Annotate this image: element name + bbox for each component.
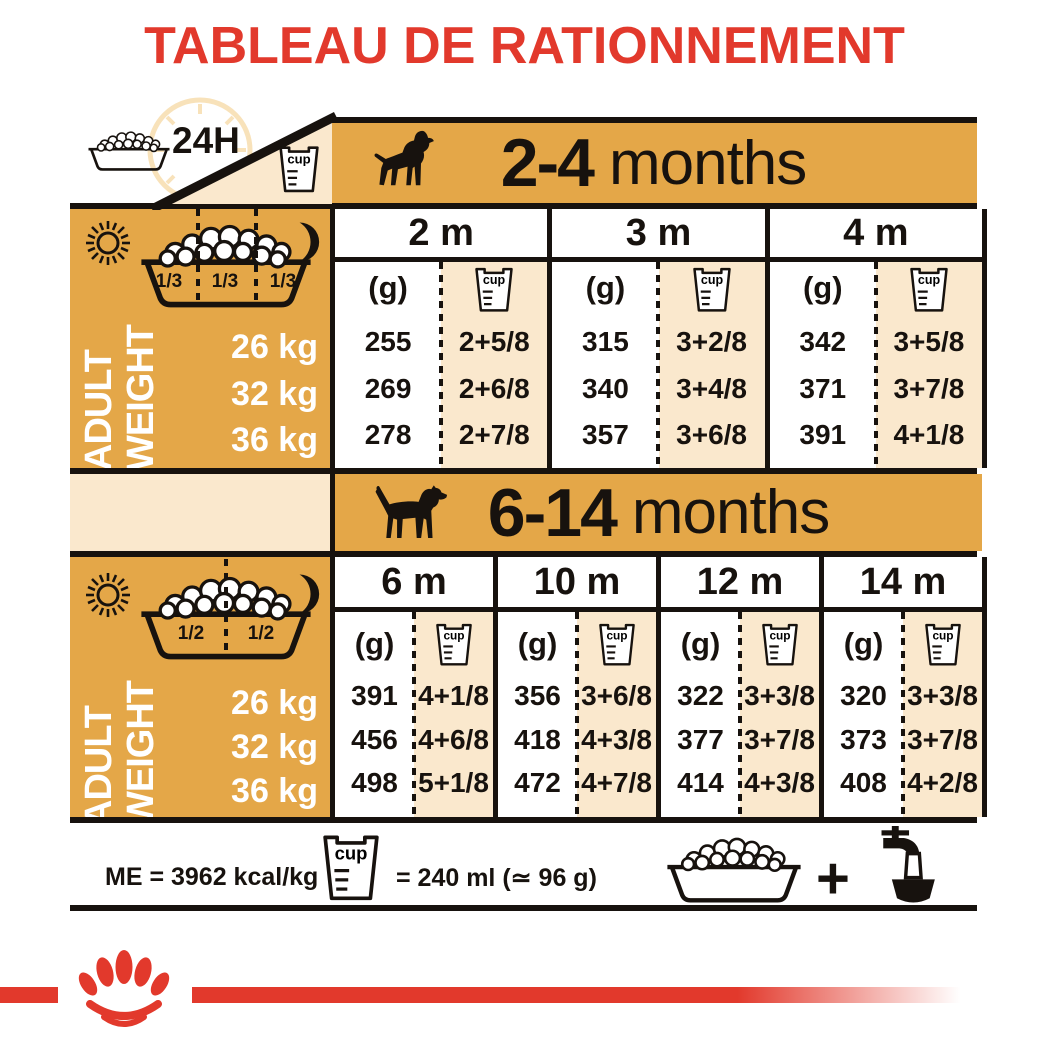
svg-text:cup: cup [918, 273, 941, 287]
svg-text:cup: cup [335, 843, 368, 864]
water-tap-icon [854, 826, 940, 912]
month-body: (g) cup 391 4+1/8 456 4+6/8 498 5+1/8 [335, 612, 493, 817]
24h-label: 24H [172, 120, 240, 162]
moon-icon [286, 573, 320, 615]
month-body: (g) cup 322 3+3/8 377 3+7/8 414 4+3/8 [661, 612, 819, 817]
cup-unit-icon: cup [903, 620, 982, 667]
adult-dog-silhouette-icon [373, 480, 449, 544]
meal-fraction: 1/2 [174, 623, 208, 645]
month-header: 4 m [770, 209, 982, 262]
grams-value: 315 [552, 324, 658, 360]
cups-value: 3+5/8 [876, 324, 982, 360]
grams-value: 357 [552, 417, 658, 453]
month-column-12m: 12 m (g) cup 322 3+3/8 377 3+7/8 414 4+3… [656, 557, 819, 817]
svg-text:cup: cup [606, 628, 627, 642]
meal-fraction: 1/3 [266, 271, 300, 293]
grams-value: 408 [824, 765, 903, 801]
month-body: (g) cup 315 3+2/8 340 3+4/8 357 3+6/8 [552, 262, 764, 468]
grams-value: 340 [552, 371, 658, 407]
cups-value: 3+6/8 [659, 417, 765, 453]
grams-value: 255 [335, 324, 441, 360]
royal-canin-paw-logo [74, 948, 174, 1030]
month-column-14m: 14 m (g) cup 320 3+3/8 373 3+7/8 408 4+2… [819, 557, 982, 817]
month-header: 14 m [824, 557, 982, 612]
plus-icon: + [816, 850, 850, 908]
grams-value: 322 [661, 678, 740, 714]
month-body: (g) cup 320 3+3/8 373 3+7/8 408 4+2/8 [824, 612, 982, 817]
month-column-3m: 3 m (g) cup 315 3+2/8 340 3+4/8 357 3+6/… [547, 209, 764, 468]
cups-value: 4+7/8 [577, 765, 656, 801]
cup-unit-icon: cup [876, 264, 982, 313]
cups-value: 5+1/8 [414, 765, 493, 801]
cups-value: 2+5/8 [441, 324, 547, 360]
svg-text:cup: cup [443, 628, 464, 642]
weight-row-label: 26 kg [188, 329, 318, 365]
month-header: 3 m [552, 209, 764, 262]
month-header: 6 m [335, 557, 493, 612]
weight-row-label: 32 kg [188, 376, 318, 412]
month-column-6m: 6 m (g) cup 391 4+1/8 456 4+6/8 498 5+1/… [335, 557, 493, 817]
section-a-age-range: 2-4 [501, 124, 593, 202]
cup-unit-icon: cup [577, 620, 656, 667]
month-header: 10 m [498, 557, 656, 612]
cups-value: 4+3/8 [577, 722, 656, 758]
meal-fraction: 1/3 [208, 271, 242, 293]
feeding-guide-page: TABLEAU DE RATIONNEMENT 24H cup 2-4 mont… [0, 0, 1049, 1049]
grams-value: 269 [335, 371, 441, 407]
month-column-2m: 2 m (g) cup 255 2+5/8 269 2+6/8 278 2+7/… [335, 209, 547, 468]
footer-rule [70, 905, 977, 911]
cups-value: 3+7/8 [740, 722, 819, 758]
svg-text:cup: cup [483, 273, 506, 287]
cups-value: 3+3/8 [740, 678, 819, 714]
grams-unit-label: (g) [824, 626, 903, 662]
grams-value: 371 [770, 371, 876, 407]
section-a-table: 2 m (g) cup 255 2+5/8 269 2+6/8 278 2+7/… [330, 209, 987, 468]
weight-row-label: 32 kg [188, 729, 318, 765]
cups-value: 3+7/8 [903, 722, 982, 758]
section-b-age-unit: months [632, 477, 829, 548]
cups-value: 4+1/8 [414, 678, 493, 714]
grams-value: 414 [661, 765, 740, 801]
bowl-divider-dotted [196, 209, 200, 301]
metabolizable-energy-label: ME = 3962 kcal/kg [105, 863, 318, 892]
measuring-cup-icon: cup [278, 142, 320, 194]
cups-value: 3+3/8 [903, 678, 982, 714]
section-a-left-panel: 1/3 1/3 1/3 ADULT WEIGHT 26 kg 32 kg 36 … [70, 209, 330, 468]
page-title: TABLEAU DE RATIONNEMENT [0, 16, 1049, 76]
section-b-header: 6-14 months [330, 474, 982, 551]
month-header: 12 m [661, 557, 819, 612]
cup-unit-icon: cup [659, 264, 765, 313]
cups-value: 4+1/8 [876, 417, 982, 453]
month-body: (g) cup 356 3+6/8 418 4+3/8 472 4+7/8 [498, 612, 656, 817]
svg-text:cup: cup [932, 628, 953, 642]
weight-row-label: 36 kg [188, 422, 318, 458]
section-b-table: 6 m (g) cup 391 4+1/8 456 4+6/8 498 5+1/… [330, 557, 987, 817]
section-b-age-range: 6-14 [488, 474, 616, 552]
puppy-silhouette-icon [373, 129, 437, 189]
cup-unit-icon: cup [441, 264, 547, 313]
bowl-divider-dotted [224, 559, 228, 653]
grams-value: 391 [770, 417, 876, 453]
svg-text:cup: cup [769, 628, 790, 642]
cup-equivalence-label: = 240 ml (≃ 96 g) [396, 863, 597, 893]
sun-icon [84, 571, 132, 619]
moon-icon [286, 221, 320, 263]
cup-unit-icon: cup [740, 620, 819, 667]
section-a-header: 2-4 months [330, 123, 977, 203]
food-bowl-icon [655, 833, 813, 907]
cups-value: 2+6/8 [441, 371, 547, 407]
grams-unit-label: (g) [335, 626, 414, 662]
svg-text:cup: cup [287, 151, 310, 166]
adult-weight-axis-label: ADULT WEIGHT [78, 667, 162, 827]
grams-value: 391 [335, 678, 414, 714]
sun-icon [84, 219, 132, 267]
cups-value: 3+2/8 [659, 324, 765, 360]
cups-value: 4+3/8 [740, 765, 819, 801]
measuring-cup-icon: cup [318, 830, 384, 902]
grams-unit-label: (g) [770, 270, 876, 306]
section-b-left-spacer [70, 474, 330, 551]
grams-value: 472 [498, 765, 577, 801]
bowl-divider-dotted [254, 209, 258, 301]
grams-value: 356 [498, 678, 577, 714]
month-column-10m: 10 m (g) cup 356 3+6/8 418 4+3/8 472 4+7… [493, 557, 656, 817]
grams-unit-label: (g) [335, 270, 441, 306]
cups-value: 4+6/8 [414, 722, 493, 758]
grams-value: 418 [498, 722, 577, 758]
cup-unit-icon: cup [414, 620, 493, 667]
month-column-4m: 4 m (g) cup 342 3+5/8 371 3+7/8 391 4+1/… [765, 209, 982, 468]
grams-unit-label: (g) [661, 626, 740, 662]
svg-text:cup: cup [700, 273, 723, 287]
weight-row-label: 36 kg [188, 773, 318, 809]
grams-unit-label: (g) [552, 270, 658, 306]
month-header: 2 m [335, 209, 547, 262]
adult-weight-axis-label: ADULT WEIGHT [78, 311, 162, 471]
cups-value: 2+7/8 [441, 417, 547, 453]
grams-value: 377 [661, 722, 740, 758]
cups-value: 3+6/8 [577, 678, 656, 714]
cups-value: 4+2/8 [903, 765, 982, 801]
meal-fraction: 1/3 [152, 271, 186, 293]
cups-value: 3+7/8 [876, 371, 982, 407]
cups-value: 3+4/8 [659, 371, 765, 407]
border-b2 [70, 817, 977, 823]
month-body: (g) cup 255 2+5/8 269 2+6/8 278 2+7/8 [335, 262, 547, 468]
food-bowl-icon [84, 126, 174, 176]
grams-value: 278 [335, 417, 441, 453]
grams-value: 456 [335, 722, 414, 758]
grams-value: 320 [824, 678, 903, 714]
section-b-left-panel: 1/2 1/2 ADULT WEIGHT 26 kg 32 kg 36 kg [70, 557, 330, 817]
grams-value: 342 [770, 324, 876, 360]
weight-row-label: 26 kg [188, 685, 318, 721]
month-body: (g) cup 342 3+5/8 371 3+7/8 391 4+1/8 [770, 262, 982, 468]
grams-unit-label: (g) [498, 626, 577, 662]
grams-value: 373 [824, 722, 903, 758]
meal-fraction: 1/2 [244, 623, 278, 645]
grams-value: 498 [335, 765, 414, 801]
section-a-age-unit: months [609, 128, 806, 199]
